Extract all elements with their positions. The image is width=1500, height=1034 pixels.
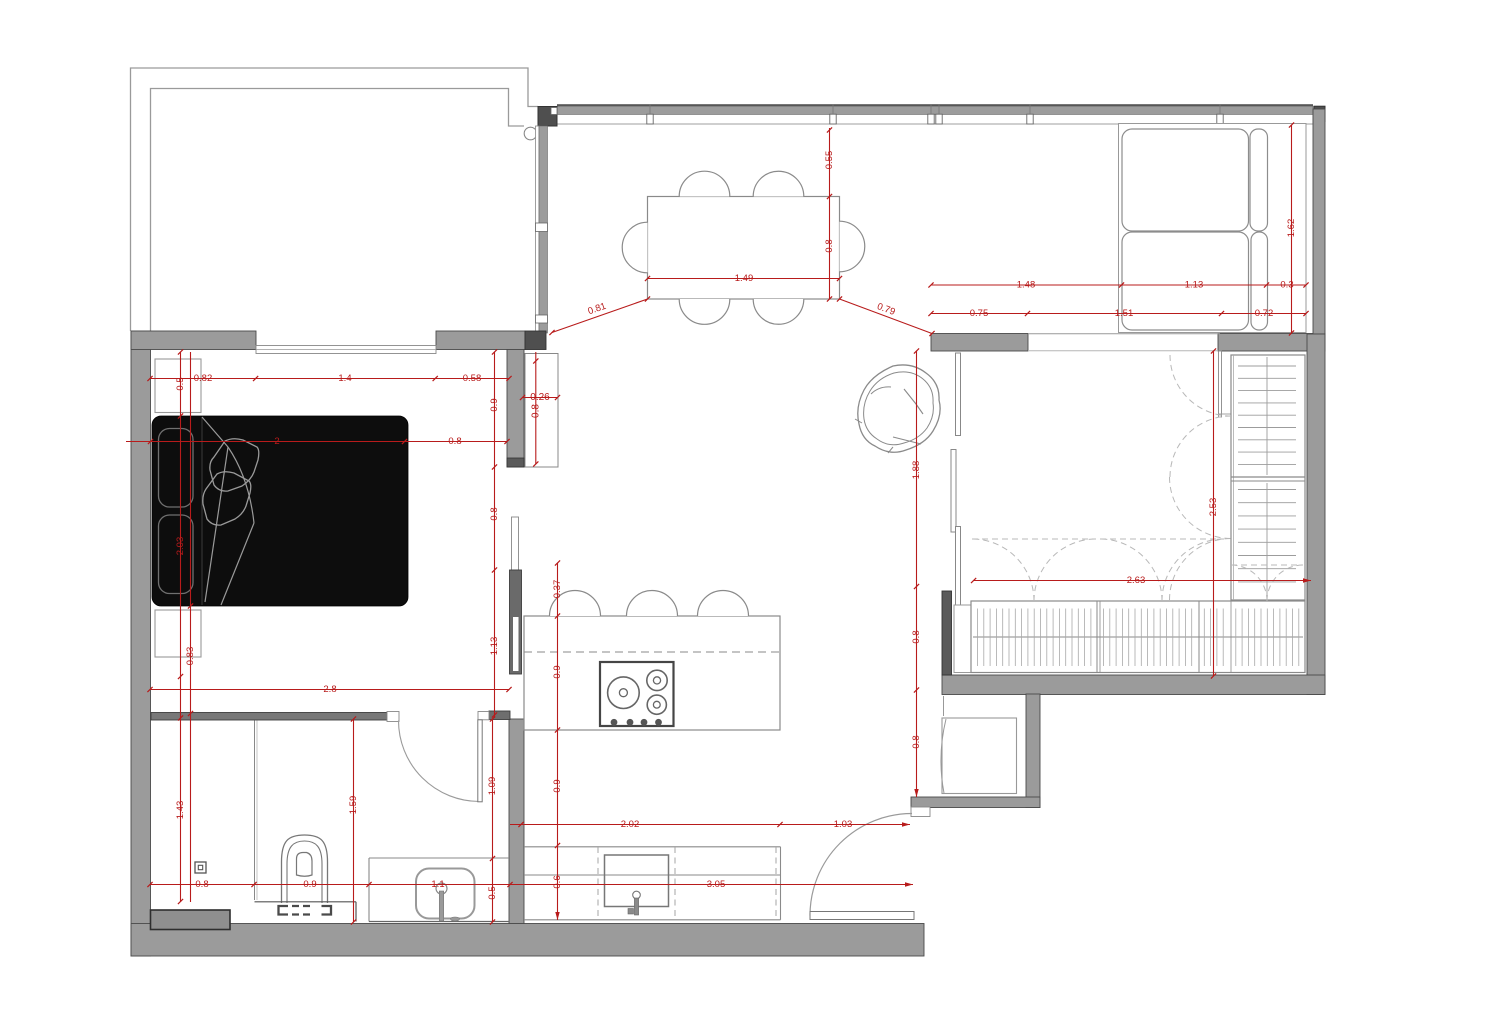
- svg-text:2.03: 2.03: [175, 537, 186, 556]
- svg-text:0.9: 0.9: [303, 879, 316, 890]
- svg-text:1.1: 1.1: [431, 879, 444, 890]
- svg-text:0.9: 0.9: [489, 398, 500, 411]
- svg-text:0.8: 0.8: [489, 507, 500, 520]
- svg-text:0.81: 0.81: [586, 301, 607, 317]
- svg-text:0.5: 0.5: [487, 886, 498, 899]
- svg-text:0.75: 0.75: [970, 308, 989, 319]
- svg-text:0.8: 0.8: [448, 436, 461, 447]
- svg-text:0.83: 0.83: [185, 647, 196, 666]
- svg-text:2.8: 2.8: [323, 684, 336, 695]
- svg-text:1.09: 1.09: [487, 777, 498, 796]
- svg-text:1.49: 1.49: [735, 273, 754, 284]
- svg-text:1.13: 1.13: [1185, 280, 1204, 291]
- svg-text:0.8: 0.8: [911, 735, 922, 748]
- svg-text:0.8: 0.8: [911, 630, 922, 643]
- svg-text:1.62: 1.62: [1286, 219, 1297, 238]
- svg-text:0.82: 0.82: [194, 373, 213, 384]
- svg-text:0.58: 0.58: [463, 373, 482, 384]
- svg-text:2.63: 2.63: [1127, 575, 1146, 586]
- svg-text:1.13: 1.13: [489, 637, 500, 656]
- svg-text:0.9: 0.9: [552, 779, 563, 792]
- svg-text:0.6: 0.6: [552, 875, 563, 888]
- svg-text:2.02: 2.02: [621, 819, 640, 830]
- svg-text:0.8: 0.8: [824, 239, 835, 252]
- svg-text:1.88: 1.88: [911, 461, 922, 480]
- svg-text:3.05: 3.05: [707, 879, 726, 890]
- svg-text:1.48: 1.48: [1017, 280, 1036, 291]
- svg-text:1.03: 1.03: [834, 819, 853, 830]
- svg-text:0.79: 0.79: [875, 301, 896, 318]
- svg-text:0.9: 0.9: [552, 665, 563, 678]
- svg-text:1.43: 1.43: [175, 801, 186, 820]
- svg-text:0.8: 0.8: [195, 879, 208, 890]
- svg-text:0.8: 0.8: [530, 404, 541, 418]
- svg-text:1.59: 1.59: [348, 796, 359, 815]
- svg-text:2.53: 2.53: [1208, 498, 1219, 517]
- svg-text:1.4: 1.4: [338, 373, 351, 384]
- svg-text:1.51: 1.51: [1115, 308, 1134, 319]
- svg-text:0.5: 0.5: [175, 377, 186, 390]
- svg-text:0.55: 0.55: [824, 151, 835, 170]
- svg-text:0.72: 0.72: [1255, 308, 1274, 319]
- svg-text:0.37: 0.37: [552, 580, 563, 599]
- svg-text:2: 2: [274, 436, 279, 447]
- svg-text:0.26: 0.26: [530, 392, 550, 403]
